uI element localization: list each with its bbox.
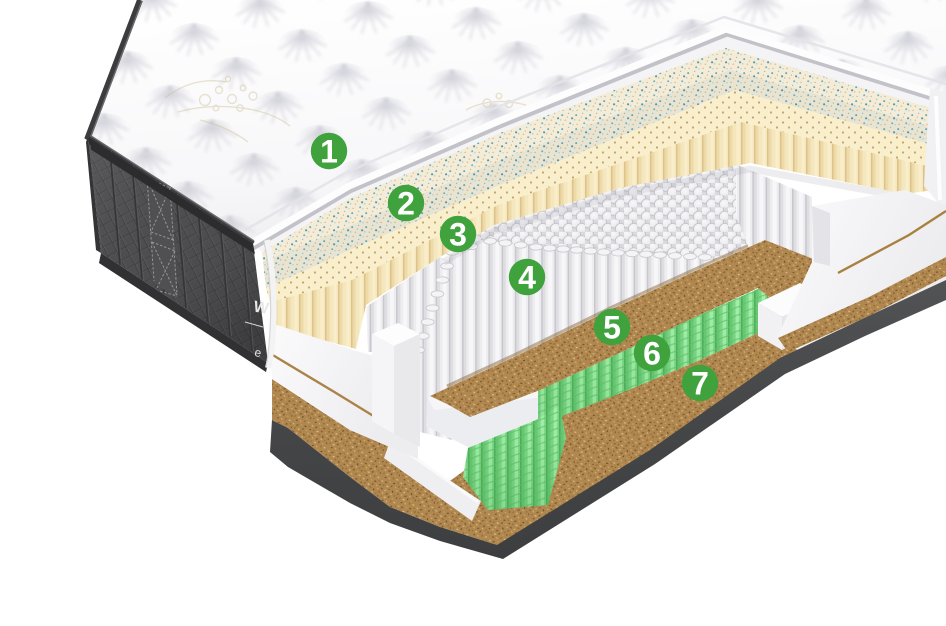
svg-text:7: 7	[691, 366, 709, 402]
svg-text:6: 6	[643, 336, 661, 372]
svg-text:4: 4	[518, 260, 536, 296]
svg-text:3: 3	[449, 217, 467, 253]
svg-text:2: 2	[397, 186, 415, 222]
svg-text:5: 5	[603, 310, 621, 346]
svg-text:1: 1	[320, 134, 338, 170]
